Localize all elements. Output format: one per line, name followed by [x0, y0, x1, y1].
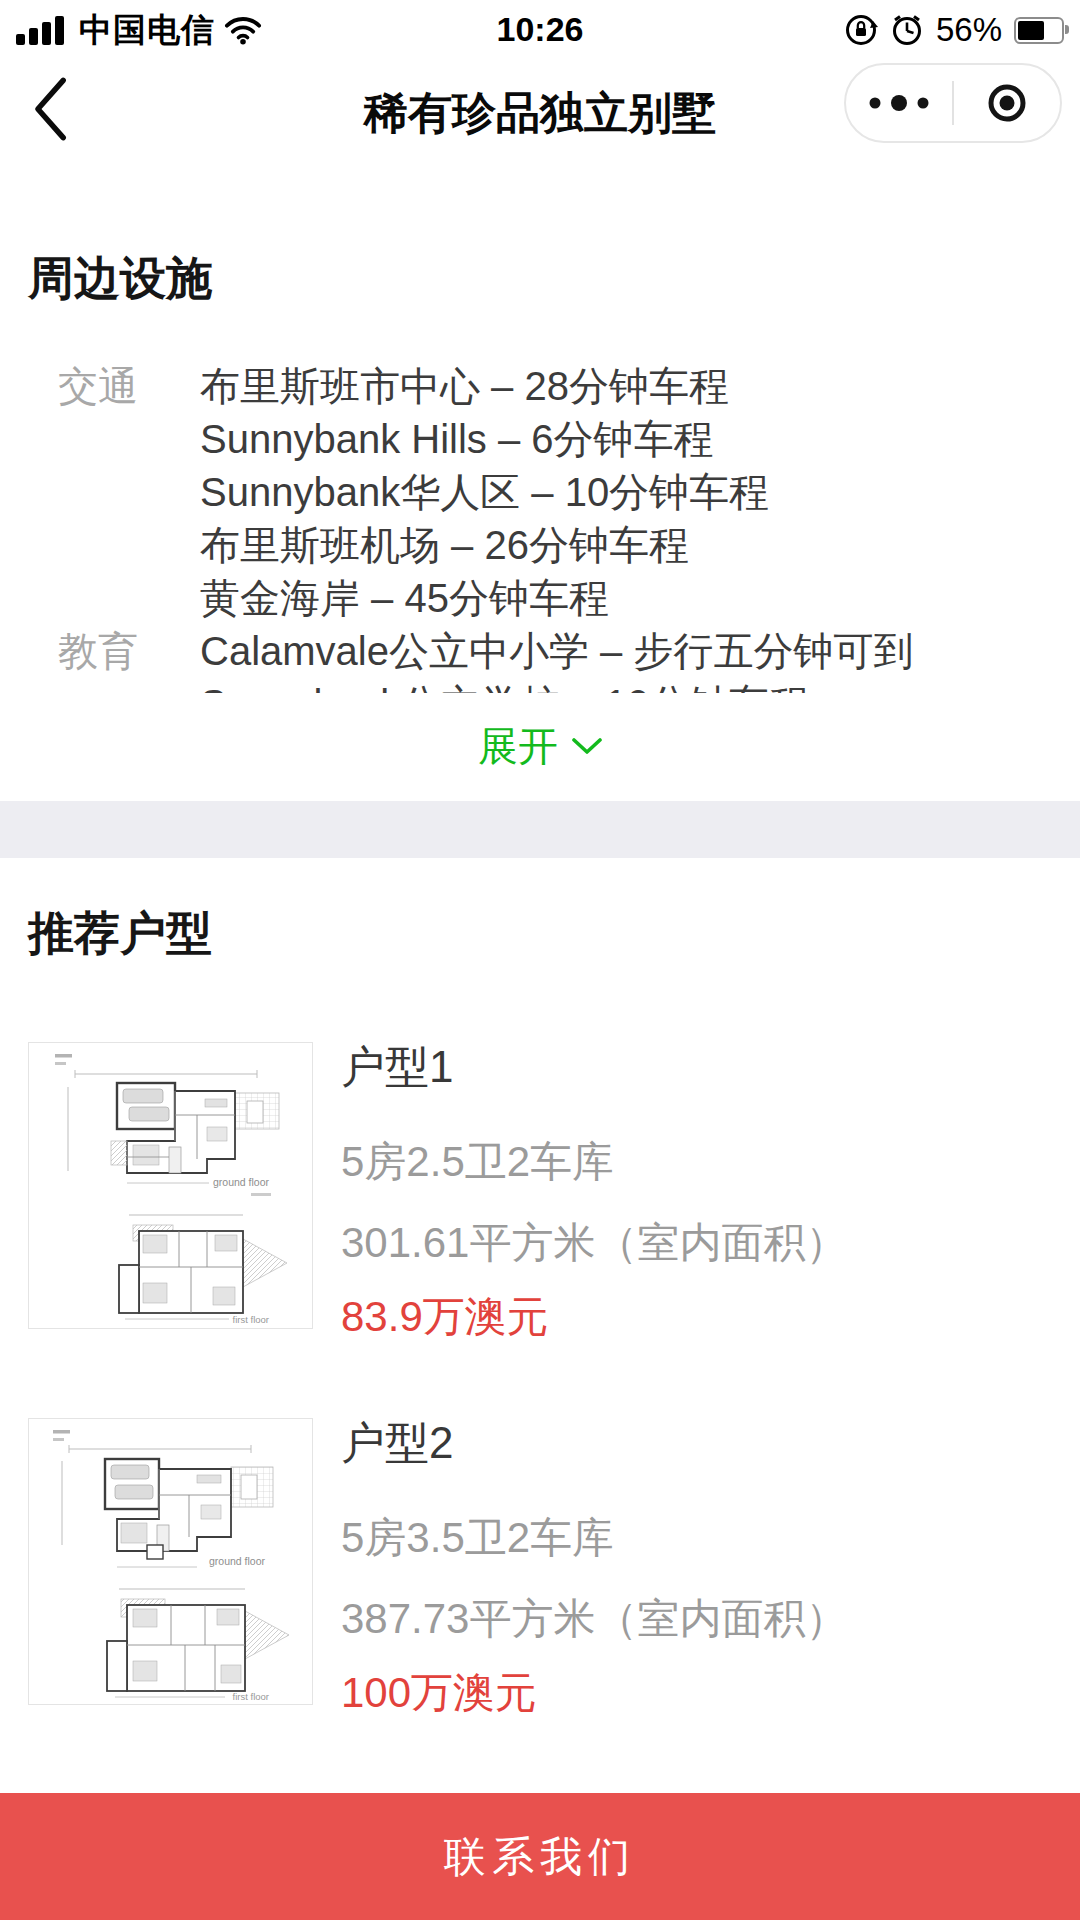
- capsule-target-icon: [984, 80, 1030, 126]
- battery-icon: [1014, 17, 1064, 44]
- more-dots-icon: [866, 94, 932, 112]
- facility-line: 布里斯班市中心 – 28分钟车程: [200, 360, 1080, 413]
- plan-card-2[interactable]: ground floor first floor 户型2 5房3.5卫2车库 3…: [28, 1418, 1052, 1715]
- expand-button[interactable]: 展开: [0, 719, 1080, 773]
- plan-area: 387.73平方米（室内面积）: [341, 1597, 847, 1641]
- plan-title: 户型2: [341, 1420, 847, 1466]
- contact-us-button[interactable]: 联系我们: [0, 1793, 1080, 1920]
- plan-spec: 5房2.5卫2车库: [341, 1140, 847, 1184]
- plan-card-1[interactable]: ground floor first floor 户型1 5房2.5卫2车库 3…: [28, 1042, 1052, 1339]
- status-time: 10:26: [0, 10, 1080, 49]
- plans-heading: 推荐户型: [0, 908, 1080, 958]
- plan-area: 301.61平方米（室内面积）: [341, 1221, 847, 1265]
- facility-group-education: 教育 Calamvale公立中小学 – 步行五分钟可到 Sunnybank公立学…: [0, 625, 1080, 693]
- nav-bar: 稀有珍品独立别墅: [0, 54, 1080, 165]
- floorplan-caption: first floor: [233, 1314, 269, 1325]
- facility-line: 黄金海岸 – 45分钟车程: [200, 572, 1080, 625]
- facilities-heading: 周边设施: [0, 253, 1080, 303]
- miniprogram-capsule: [844, 63, 1062, 143]
- facility-label: 交通: [0, 360, 200, 625]
- expand-label: 展开: [478, 719, 558, 774]
- facility-group-transport: 交通 布里斯班市中心 – 28分钟车程 Sunnybank Hills – 6分…: [0, 360, 1080, 625]
- facility-line: Sunnybank华人区 – 10分钟车程: [200, 466, 1080, 519]
- floorplan-thumbnail[interactable]: ground floor first floor: [28, 1042, 313, 1329]
- facility-line: Calamvale公立中小学 – 步行五分钟可到: [200, 625, 1080, 678]
- plan-price: 83.9万澳元: [341, 1295, 847, 1339]
- plan-price: 100万澳元: [341, 1671, 847, 1715]
- floorplan-caption: ground floor: [213, 1176, 270, 1188]
- capsule-close-button[interactable]: [954, 65, 1060, 141]
- plan-spec: 5房3.5卫2车库: [341, 1516, 847, 1560]
- facilities-list: 交通 布里斯班市中心 – 28分钟车程 Sunnybank Hills – 6分…: [0, 360, 1080, 693]
- facility-line: Sunnybank Hills – 6分钟车程: [200, 413, 1080, 466]
- facility-line: 布里斯班机场 – 26分钟车程: [200, 519, 1080, 572]
- floorplan-image: ground floor first floor: [29, 1419, 312, 1704]
- floorplan-caption: first floor: [233, 1691, 269, 1702]
- contact-us-label: 联系我们: [444, 1829, 636, 1885]
- chevron-down-icon: [572, 738, 602, 755]
- floorplan-image: ground floor first floor: [29, 1043, 312, 1328]
- plan-title: 户型1: [341, 1044, 847, 1090]
- facility-line-clipped: Sunnybank公立学校 – 10分钟车程: [200, 678, 1080, 693]
- more-button[interactable]: [846, 65, 952, 141]
- facility-label: 教育: [0, 625, 200, 693]
- section-divider: [0, 801, 1080, 858]
- status-bar: 中国电信 10:26 56%: [0, 0, 1080, 54]
- floorplan-caption: ground floor: [209, 1555, 266, 1567]
- floorplan-thumbnail[interactable]: ground floor first floor: [28, 1418, 313, 1705]
